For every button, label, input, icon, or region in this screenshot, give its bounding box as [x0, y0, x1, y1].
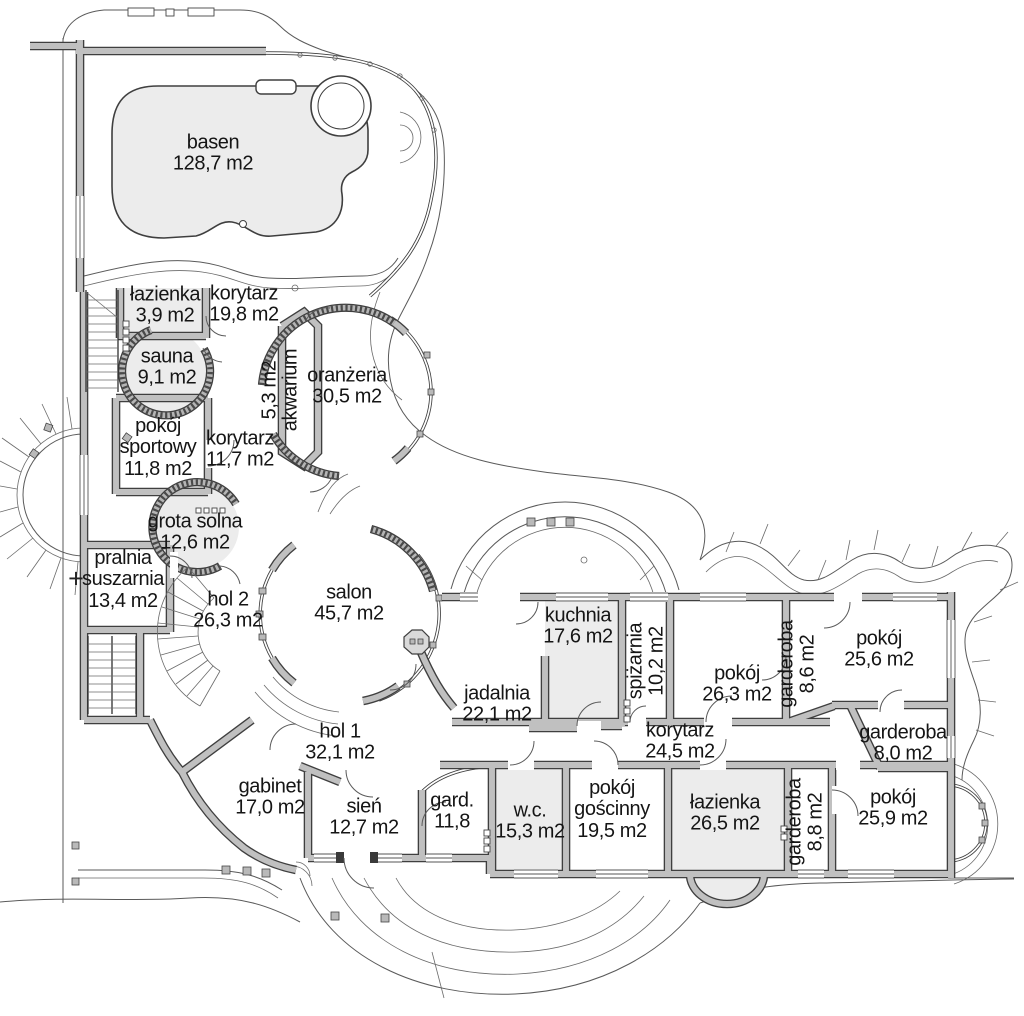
room-label-line: gard. [430, 791, 474, 812]
room-label-line: grota solna [148, 512, 243, 533]
room-label-korytarz-gorny: korytarz11,7 m2 [206, 429, 274, 472]
terrace-rays [0, 397, 78, 595]
room-label-pokoj-259: pokój25,9 m2 [858, 788, 927, 831]
floor-plan-drawing [0, 0, 1024, 1016]
room-label-line: pralnia [82, 548, 164, 569]
room-label-line: garderoba [785, 778, 806, 866]
room-label-line: pokój [858, 788, 927, 809]
stair-upper [86, 290, 118, 392]
room-label-line: 19,5 m2 [574, 821, 650, 842]
room-label-line: 8,8 m2 [806, 778, 827, 866]
room-label-line: sauna [138, 347, 197, 368]
room-label-gabinet: gabinet17,0 m2 [235, 777, 304, 820]
room-label-line: 26,3 m2 [193, 611, 262, 632]
room-label-line: garderoba [777, 620, 798, 708]
floor-plan: basen128,7 m2łazienka3,9 m2korytarz19,8 … [0, 0, 1024, 1016]
room-label-kuchnia: kuchnia17,6 m2 [543, 606, 612, 649]
room-label-line: łazienka [130, 285, 200, 306]
marker-level-cross: + [68, 564, 84, 595]
room-label-line: 24,5 m2 [645, 742, 714, 763]
room-label-line: 8,6 m2 [798, 620, 819, 708]
room-label-line: 11,7 m2 [206, 450, 274, 471]
room-label-line: jadalnia [462, 684, 531, 705]
room-label-line: 26,3 m2 [702, 685, 771, 706]
room-label-pokoj-256: pokój25,6 m2 [844, 629, 913, 672]
room-label-spizarnia: spiżarnia10,2 m2 [626, 623, 669, 699]
room-label-line: pokój [574, 778, 650, 799]
room-label-line: 10,2 m2 [647, 623, 668, 699]
room-label-line: łazienka [690, 793, 760, 814]
room-label-lazienka-goraca: łazienka3,9 m2 [130, 285, 200, 328]
room-label-korytarz-nocny: korytarz24,5 m2 [645, 721, 714, 764]
room-label-line: korytarz [209, 284, 278, 305]
room-label-line: akwarium [281, 349, 302, 431]
room-label-line: pokój [702, 664, 771, 685]
room-label-pokoj-sportowy: pokójsportowy11,8 m2 [120, 416, 197, 480]
room-label-line: korytarz [645, 721, 714, 742]
room-label-line: 12,7 m2 [329, 818, 398, 839]
room-label-line: basen [173, 133, 253, 154]
room-label-line: sportowy [120, 437, 197, 458]
whirlpool [311, 76, 371, 136]
room-label-line: 128,7 m2 [173, 154, 253, 175]
room-label-oranzeria: oranżeria30,5 m2 [307, 366, 387, 409]
room-label-line: kuchnia [543, 606, 612, 627]
pool [112, 76, 421, 238]
room-label-line: suszarnia [82, 569, 164, 590]
room-label-line: 22,1 m2 [462, 705, 531, 726]
stair-lower [88, 636, 136, 714]
room-label-hol-2: hol 226,3 m2 [193, 590, 262, 633]
room-label-line: 32,1 m2 [305, 743, 374, 764]
room-label-line: 11,8 [430, 812, 474, 833]
room-label-jadalnia: jadalnia22,1 m2 [462, 684, 531, 727]
room-label-line: 9,1 m2 [138, 368, 197, 389]
room-label-line: 8,0 m2 [859, 744, 947, 765]
room-label-line: 11,8 m2 [120, 459, 197, 480]
room-label-lazienka-nocna: łazienka26,5 m2 [690, 793, 760, 836]
room-label-gard: gard.11,8 [430, 791, 474, 834]
room-label-garderoba-80: garderoba8,0 m2 [859, 723, 947, 766]
room-label-line: korytarz [206, 429, 274, 450]
room-label-line: hol 1 [305, 722, 374, 743]
room-label-basen: basen128,7 m2 [173, 133, 253, 176]
room-label-wc: w.c.15,3 m2 [495, 801, 564, 844]
room-label-line: 30,5 m2 [307, 387, 387, 408]
room-label-line: 45,7 m2 [314, 604, 383, 625]
room-label-line: 25,9 m2 [858, 809, 927, 830]
room-label-pokoj-26: pokój26,3 m2 [702, 664, 771, 707]
room-label-line: 13,4 m2 [82, 591, 164, 612]
room-label-line: 17,6 m2 [543, 627, 612, 648]
room-label-garderoba-88: garderoba8,8 m2 [785, 778, 828, 866]
room-label-hol-1: hol 132,1 m2 [305, 722, 374, 765]
room-label-line: w.c. [495, 801, 564, 822]
room-label-line: 5,3 m2 [260, 349, 281, 431]
room-label-line: pokój [844, 629, 913, 650]
fireplace [404, 630, 429, 654]
room-label-line: pokój [120, 416, 197, 437]
room-label-line: spiżarnia [626, 623, 647, 699]
room-label-line: gościnny [574, 799, 650, 820]
room-label-sien: sień12,7 m2 [329, 797, 398, 840]
room-label-pokoj-goscinny: pokójgościnny19,5 m2 [574, 778, 650, 842]
room-label-salon: salon45,7 m2 [314, 583, 383, 626]
room-label-line: 17,0 m2 [235, 798, 304, 819]
room-label-line: 19,8 m2 [209, 305, 278, 326]
room-label-garderoba-86: garderoba8,6 m2 [777, 620, 820, 708]
room-label-line: gabinet [235, 777, 304, 798]
room-label-line: garderoba [859, 723, 947, 744]
room-label-akwarium: 5,3 m2akwarium [260, 349, 303, 431]
room-label-sauna: sauna9,1 m2 [138, 347, 197, 390]
room-label-line: 26,5 m2 [690, 814, 760, 835]
room-label-line: 25,6 m2 [844, 650, 913, 671]
room-label-line: 15,3 m2 [495, 822, 564, 843]
room-label-line: hol 2 [193, 590, 262, 611]
room-label-pralnia-suszarnia: pralniasuszarnia13,4 m2 [82, 548, 164, 612]
room-label-korytarz-basenowy: korytarz19,8 m2 [209, 284, 278, 327]
room-label-line: oranżeria [307, 366, 387, 387]
room-label-line: sień [329, 797, 398, 818]
room-label-line: salon [314, 583, 383, 604]
room-label-line: 3,9 m2 [130, 306, 200, 327]
